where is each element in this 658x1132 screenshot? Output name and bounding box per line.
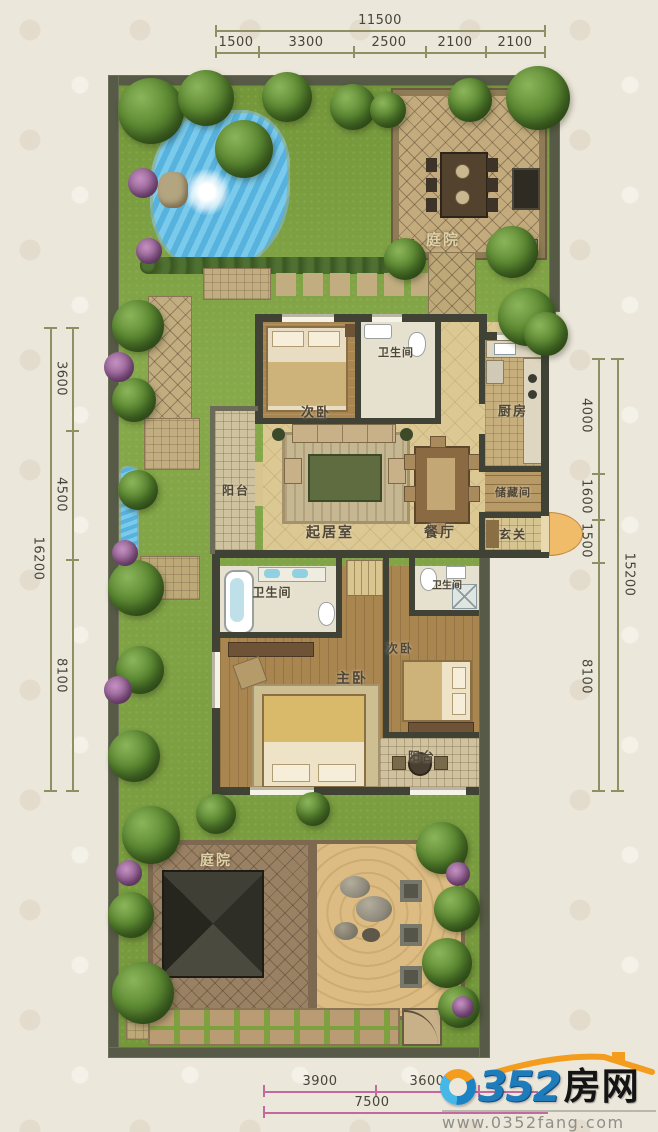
- logo-zero-icon: [440, 1069, 476, 1105]
- sofa-main: [292, 424, 396, 443]
- dim-tick: [592, 562, 605, 564]
- pillow: [272, 331, 304, 347]
- room-label-living: 起居室: [306, 522, 354, 542]
- room-label-foyer: 玄关: [499, 526, 527, 543]
- balcony-left-floor: [215, 411, 255, 550]
- background-mask: [490, 558, 552, 1058]
- stone-lantern: [400, 924, 422, 946]
- bathtub: [224, 570, 254, 634]
- outdoor-chair: [426, 178, 437, 192]
- rock: [340, 876, 370, 898]
- dim-tick: [592, 519, 605, 521]
- tree: [112, 300, 164, 352]
- wall: [479, 512, 541, 518]
- flower-bush: [112, 540, 138, 566]
- dim-bottom-total: 7500: [340, 1095, 404, 1110]
- tree: [122, 806, 180, 864]
- dim-tick: [611, 358, 624, 360]
- fountain-pedestal: [158, 172, 188, 208]
- entry-door-gap: [541, 516, 549, 552]
- tree: [118, 78, 184, 144]
- dim-bottom-seg: 3900: [288, 1074, 352, 1089]
- dim-left-total: 16200: [31, 536, 46, 582]
- paver-band: [148, 1008, 400, 1046]
- dresser: [228, 642, 314, 657]
- tree: [108, 892, 154, 938]
- tree: [370, 92, 406, 128]
- grill-station: [512, 168, 540, 210]
- bed-upper: [266, 326, 348, 412]
- dim-tick: [66, 559, 79, 561]
- dim-line: [215, 30, 545, 32]
- planter: [272, 428, 285, 441]
- watermark-logo: 352 房网 www.0352fang.com: [440, 1054, 658, 1132]
- dim-line: [617, 358, 619, 792]
- tree: [108, 560, 164, 616]
- wall: [212, 550, 549, 558]
- dim-line: [215, 52, 545, 54]
- room-label-balcony-left: 阳台: [222, 482, 250, 499]
- tree: [486, 226, 538, 278]
- logo-url: www.0352fang.com: [442, 1110, 656, 1132]
- flower-bush: [104, 676, 132, 704]
- dim-top-seg: 2500: [357, 35, 421, 50]
- room-label-storage: 储藏间: [495, 484, 531, 500]
- dim-tick: [611, 790, 624, 792]
- dim-top-seg: 2100: [423, 35, 487, 50]
- wall: [220, 632, 342, 638]
- plot-wall-top: [108, 75, 560, 86]
- flower-bush: [136, 238, 162, 264]
- dim-left-seg: 3600: [54, 356, 69, 402]
- dim-left-seg: 4500: [54, 472, 69, 518]
- dim-tick: [263, 1106, 265, 1118]
- stove-burner: [528, 374, 537, 383]
- plate: [455, 190, 470, 205]
- room-label-bedroom2-upper: 次卧: [301, 402, 331, 421]
- balcony-door-gap: [255, 462, 263, 506]
- sink-bowl: [264, 569, 280, 578]
- pillow: [308, 331, 340, 347]
- dining-chair: [468, 486, 480, 502]
- wall: [255, 314, 263, 418]
- dim-tick: [592, 358, 605, 360]
- dim-tick: [66, 327, 79, 329]
- outdoor-chair: [487, 158, 498, 172]
- path-patch: [144, 418, 200, 470]
- tree: [524, 312, 568, 356]
- path-lattice-vertical: [428, 252, 476, 316]
- wall: [255, 418, 441, 424]
- outdoor-chair: [426, 158, 437, 172]
- wall: [389, 732, 479, 738]
- blanket: [404, 662, 442, 720]
- tree: [296, 792, 330, 826]
- rock: [334, 922, 358, 940]
- armchair: [284, 458, 302, 484]
- dim-right-total: 15200: [622, 552, 637, 598]
- window: [212, 652, 220, 708]
- stove-burner: [528, 390, 537, 399]
- room-label-bath-upper: 卫生间: [378, 344, 414, 360]
- dim-left-seg: 8100: [54, 653, 69, 699]
- bathtub-water: [230, 578, 244, 622]
- tree: [118, 470, 158, 510]
- master-bed: [262, 694, 366, 788]
- pillow: [452, 693, 466, 715]
- outdoor-chair: [487, 178, 498, 192]
- dim-tick: [592, 473, 605, 475]
- toilet-lower-left: [318, 602, 335, 626]
- dining-table: [414, 446, 470, 524]
- wall: [479, 518, 485, 550]
- flower-bush: [452, 996, 474, 1018]
- flower-bush: [104, 352, 134, 382]
- pillow: [272, 764, 310, 782]
- wall: [336, 558, 342, 638]
- wall: [435, 314, 441, 424]
- dim-line: [50, 327, 52, 792]
- blanket: [264, 696, 364, 742]
- outdoor-chair: [426, 198, 437, 212]
- outdoor-dining-table: [440, 152, 488, 218]
- logo-cn-text: 房网: [564, 1068, 640, 1106]
- room-label-bath-lower-left: 卫生间: [252, 584, 291, 601]
- tree: [262, 72, 312, 122]
- stone-lantern: [400, 880, 422, 902]
- stone-lantern: [400, 966, 422, 988]
- dining-chair: [404, 486, 416, 502]
- tree: [384, 238, 426, 280]
- logo-number: 352: [478, 1068, 560, 1106]
- wall: [409, 558, 415, 616]
- room-label-balcony-lower: 阳台: [408, 748, 436, 765]
- balcony-chair: [392, 756, 406, 770]
- plot-wall-right-lower: [479, 552, 490, 1058]
- window: [282, 314, 334, 322]
- room-label-courtyard-bottom: 庭院: [200, 850, 232, 870]
- room-label-bedroom2-lower: 次卧: [386, 640, 414, 657]
- dining-chair: [430, 436, 446, 448]
- pavilion-roof: [164, 872, 262, 976]
- kitchen-sink: [494, 343, 516, 355]
- logo-text-row: 352 房网: [440, 1068, 640, 1106]
- tree: [112, 378, 156, 422]
- dim-right-seg: 8100: [579, 654, 594, 700]
- rock: [362, 928, 380, 942]
- room-label-bath-lower-right: 卫生间: [432, 577, 462, 592]
- sink-upper: [364, 324, 392, 339]
- flower-bush: [128, 168, 158, 198]
- dim-right-seg: 1600: [579, 474, 594, 520]
- flower-bush: [116, 860, 142, 886]
- wall: [479, 466, 541, 472]
- bed-lower: [402, 660, 472, 722]
- dim-top-seg: 2100: [483, 35, 547, 50]
- tree: [448, 78, 492, 122]
- flower-bush: [446, 862, 470, 886]
- floorplan-page: { "dimensions": { "top": {"total": "1150…: [0, 0, 658, 1132]
- dim-top-seg: 3300: [274, 35, 338, 50]
- tree: [422, 938, 472, 988]
- tree: [330, 84, 376, 130]
- balcony-chair: [434, 756, 448, 770]
- balcony-wall: [210, 406, 215, 554]
- tree: [506, 66, 570, 130]
- planter: [400, 428, 413, 441]
- dim-tick: [44, 790, 57, 792]
- path-patch: [203, 268, 271, 300]
- window: [410, 787, 466, 795]
- fridge: [486, 360, 504, 384]
- balcony-wall: [210, 406, 258, 411]
- pillow: [318, 764, 356, 782]
- stairs: [346, 560, 384, 596]
- room-label-courtyard-top: 庭院: [426, 229, 460, 250]
- fountain: [183, 168, 231, 216]
- tree: [196, 794, 236, 834]
- paver-joint: [150, 1026, 398, 1030]
- coffee-table: [308, 454, 382, 502]
- wall: [479, 434, 485, 470]
- dim-tick: [263, 1085, 265, 1097]
- dim-top-total: 11500: [348, 13, 412, 28]
- dim-tick: [592, 790, 605, 792]
- tree: [108, 730, 160, 782]
- wall: [355, 314, 361, 424]
- dim-right-seg: 1500: [579, 518, 594, 564]
- dim-tick: [66, 430, 79, 432]
- outdoor-chair: [487, 198, 498, 212]
- tree: [178, 70, 234, 126]
- wall: [479, 340, 485, 404]
- plot-wall-bottom: [108, 1047, 490, 1058]
- dim-tick: [353, 46, 355, 58]
- logo-zero-hole: [449, 1078, 467, 1096]
- dim-right-seg: 4000: [579, 393, 594, 439]
- dim-tick: [44, 327, 57, 329]
- window: [372, 314, 402, 322]
- dining-chair: [404, 454, 416, 470]
- sink-bowl: [292, 569, 308, 578]
- rock: [356, 896, 392, 922]
- room-label-master: 主卧: [336, 668, 368, 688]
- table-runner: [427, 458, 455, 510]
- dim-line: [598, 358, 600, 792]
- shoe-cabinet: [486, 520, 499, 548]
- wall: [409, 610, 479, 616]
- dim-top-seg: 1500: [204, 35, 268, 50]
- room-label-kitchen: 厨房: [498, 401, 528, 420]
- plate: [455, 164, 470, 179]
- blanket: [268, 362, 346, 406]
- pillow: [452, 667, 466, 689]
- tree: [215, 120, 273, 178]
- dim-tick: [66, 790, 79, 792]
- tree: [434, 886, 480, 932]
- tree: [112, 962, 174, 1024]
- room-label-dining: 餐厅: [424, 522, 456, 542]
